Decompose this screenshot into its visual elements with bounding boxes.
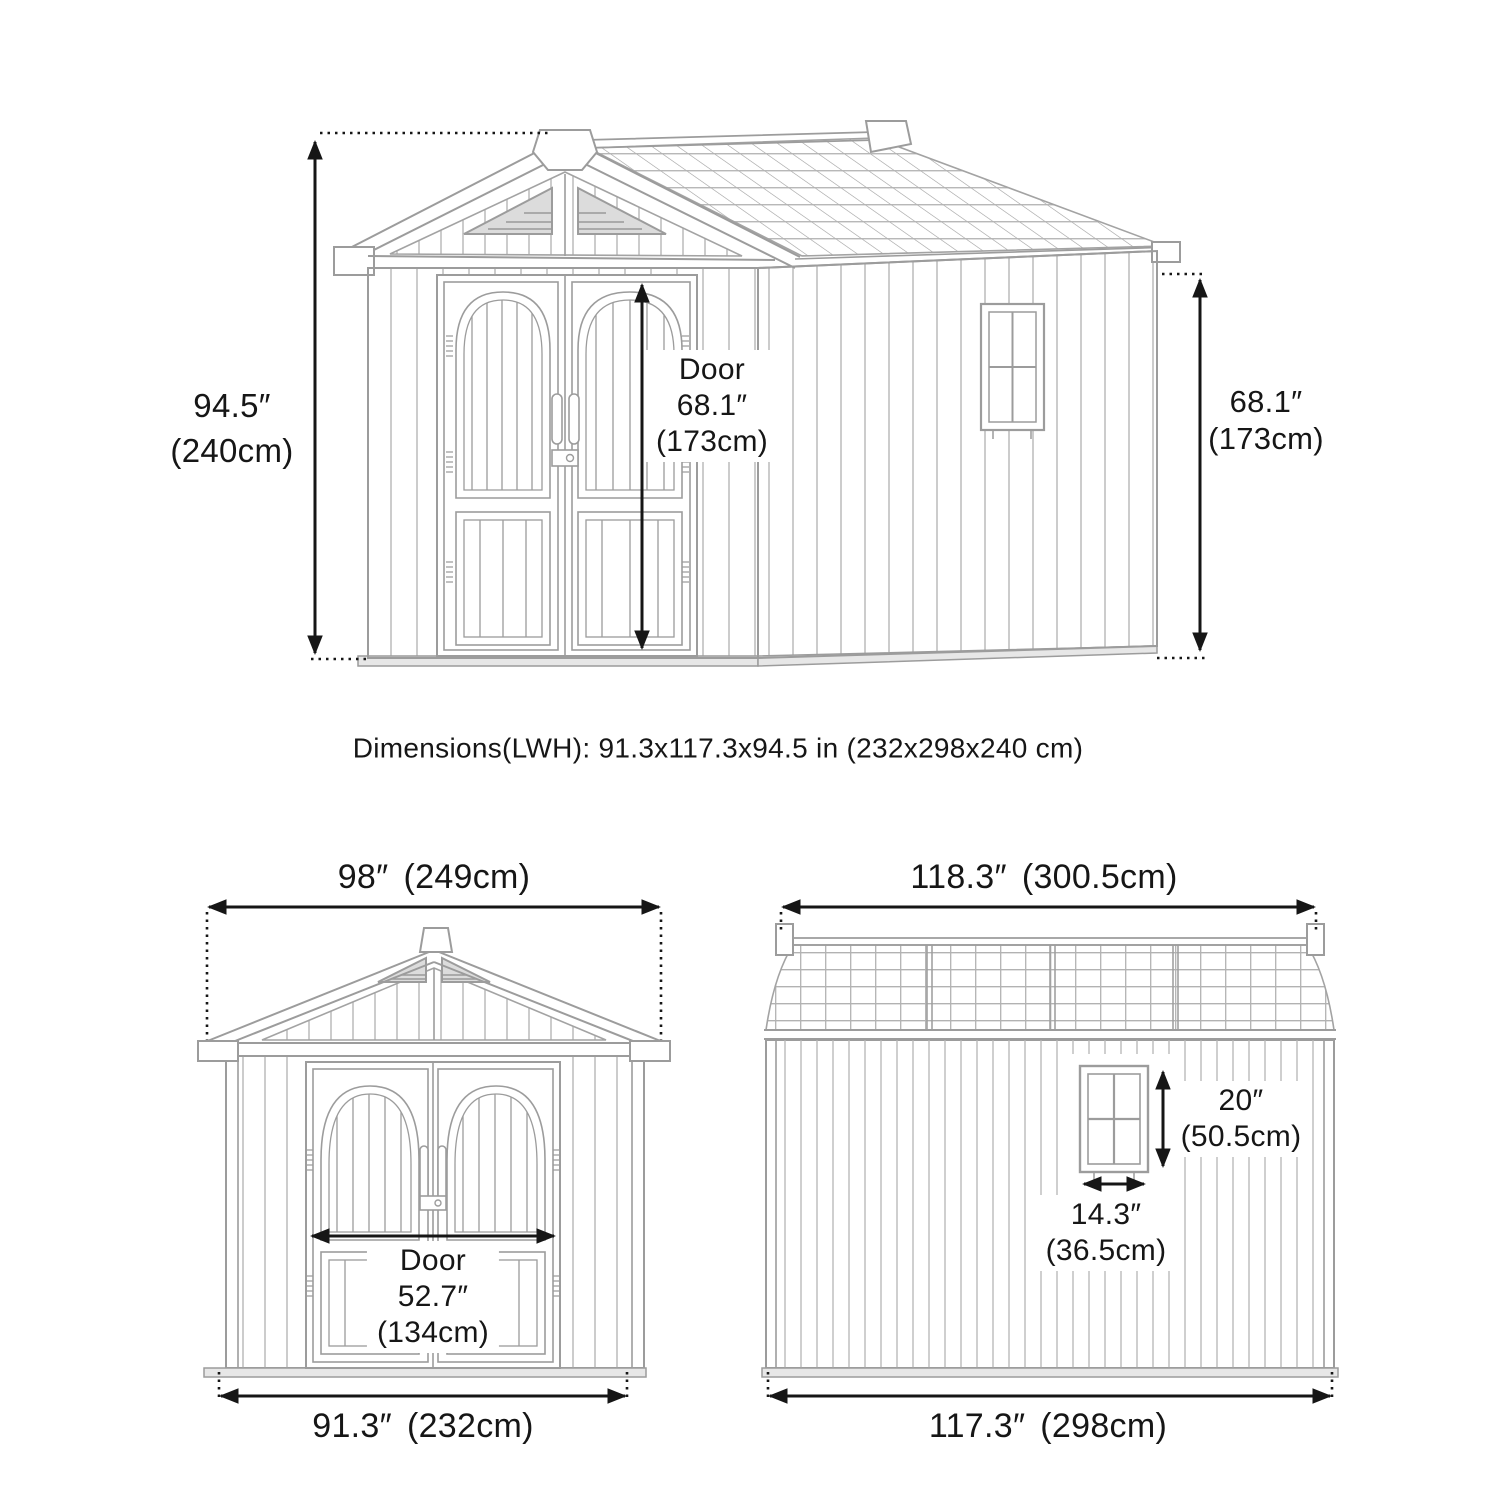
side-base-length-cm: (298cm)	[1040, 1407, 1167, 1445]
door-height-label: Door 68.1″ (173cm)	[646, 350, 778, 462]
wall-height-in: 68.1″	[1230, 384, 1303, 419]
front-door-width-cm: (134cm)	[377, 1316, 489, 1349]
front-door-width-label: Door 52.7″ (134cm)	[367, 1241, 499, 1353]
front-base-width-in: 91.3″	[312, 1407, 392, 1445]
window-width-cm: (36.5cm)	[1046, 1234, 1167, 1267]
door-height-title: Door	[679, 353, 745, 386]
side-base-length-in: 117.3″	[929, 1407, 1025, 1445]
door-height-in: 68.1″	[677, 389, 748, 422]
window-width-label: 14.3″ (36.5cm)	[1036, 1195, 1177, 1271]
overall-height-label: 94.5″ (240cm)	[170, 383, 293, 473]
window-height-label: 20″ (50.5cm)	[1171, 1081, 1312, 1157]
side-window	[1080, 1066, 1148, 1184]
window-width-in: 14.3″	[1071, 1198, 1142, 1231]
side-roof-length-cm: (300.5cm)	[1022, 858, 1178, 896]
side-base-length-label: 117.3″(298cm)	[929, 1406, 1167, 1446]
front-roof-width-in: 98″	[338, 858, 389, 896]
door-height-cm: (173cm)	[656, 425, 768, 458]
side-window	[981, 304, 1044, 439]
wall-height-label: 68.1″ (173cm)	[1208, 383, 1324, 457]
shed-dimension-diagram: 94.5″ (240cm) Door 68.1″ (173cm) 68.1″ (…	[0, 0, 1500, 1500]
side-roof-length-in: 118.3″	[910, 858, 1006, 896]
side-roof-length-label: 118.3″(300.5cm)	[910, 857, 1177, 897]
window-height-cm: (50.5cm)	[1181, 1120, 1302, 1153]
front-door-width-title: Door	[400, 1244, 466, 1277]
front-roof-width-cm: (249cm)	[403, 858, 530, 896]
front-roof-width-label: 98″(249cm)	[338, 857, 531, 897]
front-door-width-in: 52.7″	[398, 1280, 469, 1313]
dimensions-summary-text: Dimensions(LWH): 91.3x117.3x94.5 in (232…	[353, 731, 1083, 764]
wall-height-cm: (173cm)	[1208, 421, 1324, 456]
window-height-in: 20″	[1219, 1084, 1264, 1117]
front-base-width-label: 91.3″(232cm)	[312, 1406, 534, 1446]
dimensions-summary-line: Dimensions(LWH): 91.3x117.3x94.5 in (232…	[353, 732, 1083, 763]
overall-height-in: 94.5″	[193, 387, 270, 424]
front-base-width-cm: (232cm)	[407, 1407, 534, 1445]
overall-height-cm: (240cm)	[170, 432, 293, 469]
perspective-double-door	[437, 275, 697, 656]
